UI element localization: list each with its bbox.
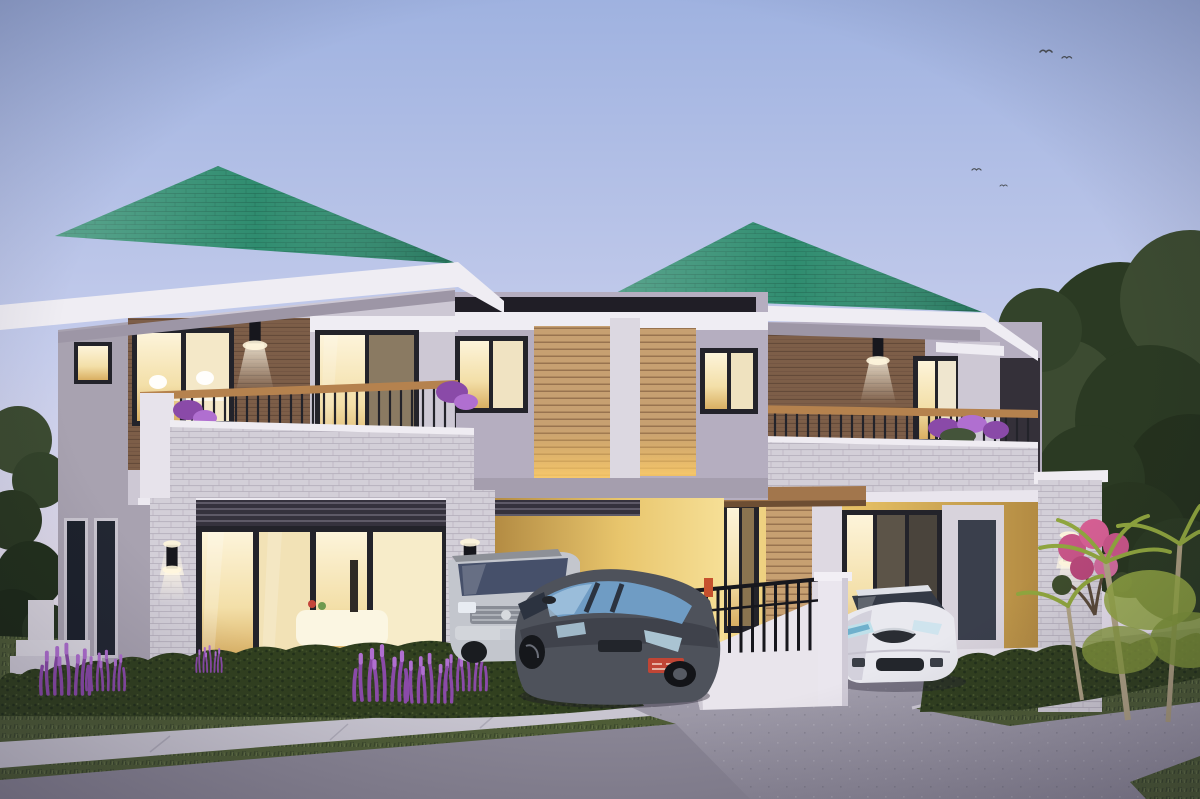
duplex-house-scene (0, 0, 1200, 799)
vignette-overlay (0, 0, 1200, 799)
architectural-rendering (0, 0, 1200, 799)
